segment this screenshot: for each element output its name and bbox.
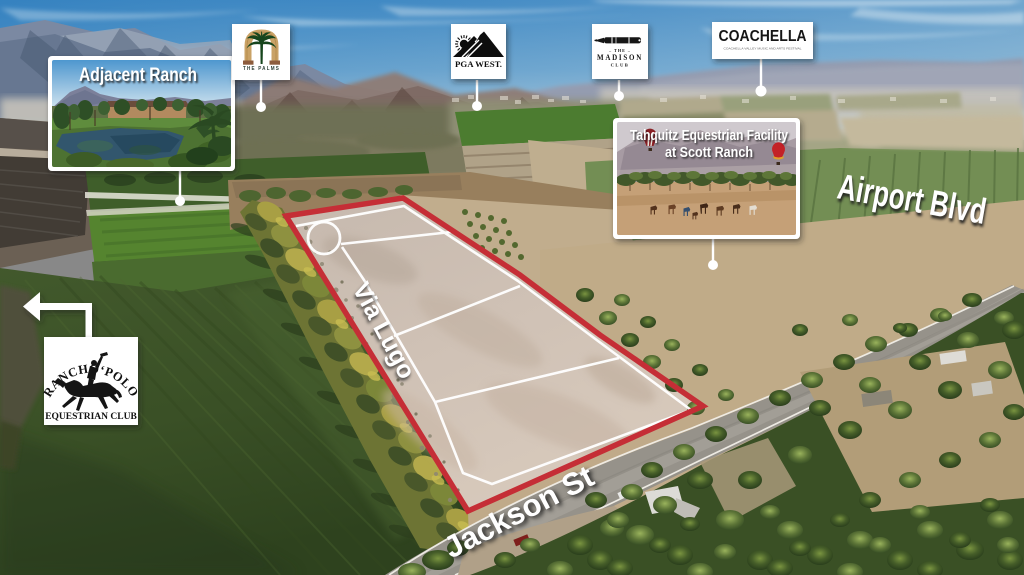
svg-text:THE PALMS: THE PALMS	[243, 66, 280, 72]
svg-text:EQUESTRIAN CLUB: EQUESTRIAN CLUB	[45, 412, 137, 422]
svg-text:CLUB: CLUB	[611, 63, 630, 68]
svg-text:PGA WEST.: PGA WEST.	[455, 59, 502, 69]
svg-text:Adjacent Ranch: Adjacent Ranch	[79, 65, 197, 86]
svg-text:Tahquitz Equestrian Facility: Tahquitz Equestrian Facility	[630, 128, 788, 144]
svg-text:MADISON: MADISON	[597, 53, 643, 62]
svg-text:COACHELLA: COACHELLA	[719, 28, 807, 45]
svg-text:at Scott Ranch: at Scott Ranch	[665, 145, 753, 161]
svg-text:COACHELLA VALLEY MUSIC AND ART: COACHELLA VALLEY MUSIC AND ARTS FESTIVAL	[724, 47, 802, 51]
